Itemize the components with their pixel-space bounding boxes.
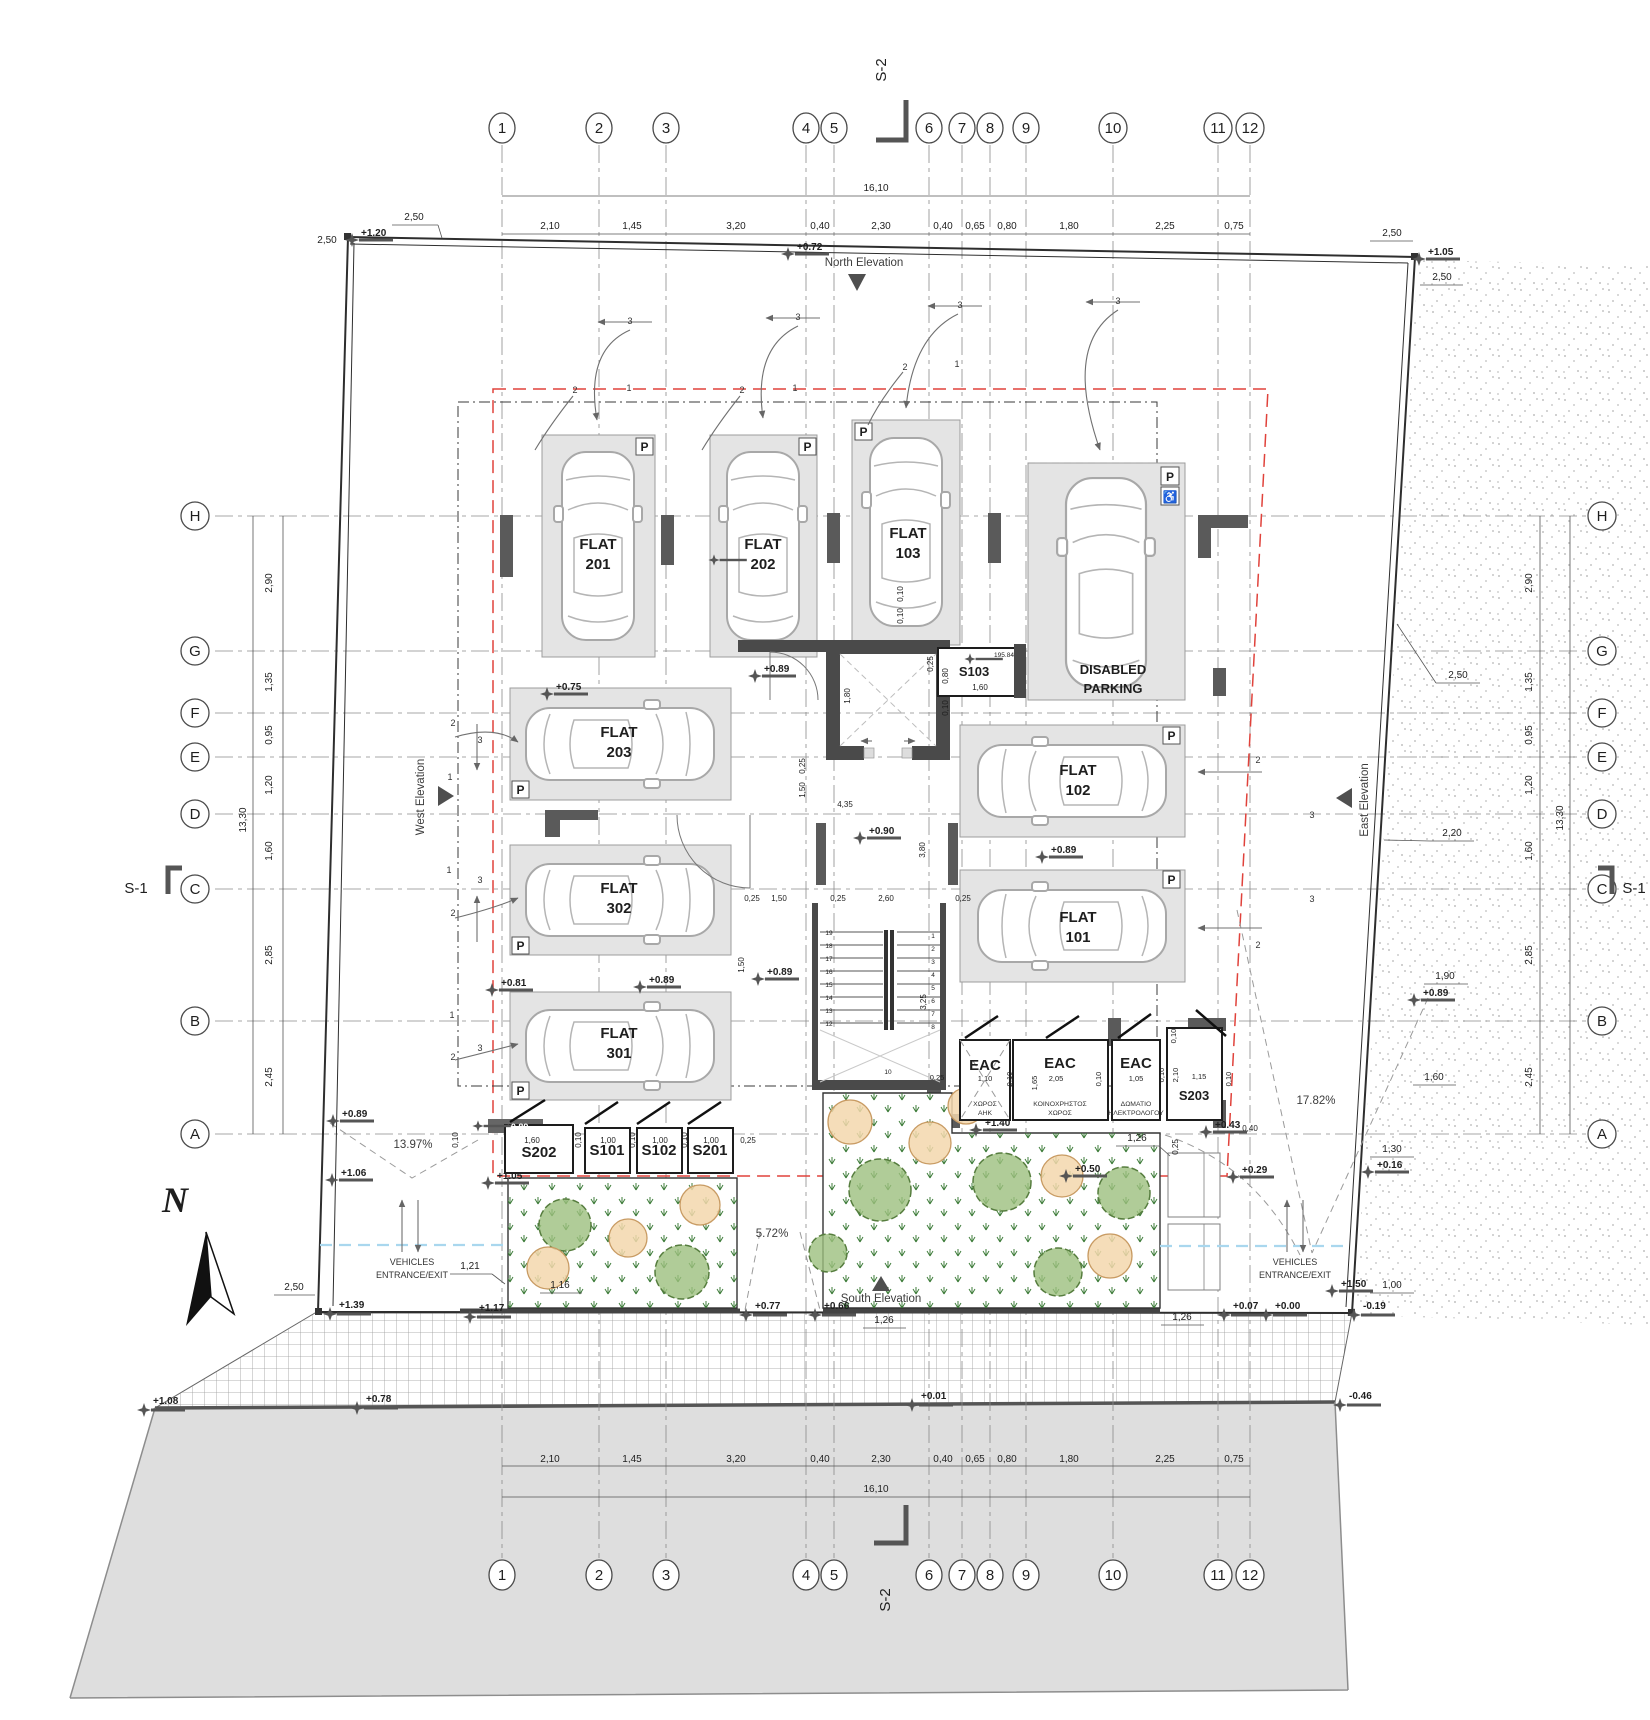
- svg-text:12: 12: [1242, 1567, 1259, 1584]
- dimension-labels-top: 2,101,45 3,200,40 2,300,40 0,650,80 1,80…: [540, 183, 1244, 232]
- sidewalk-pavement: [155, 1313, 1352, 1408]
- svg-text:1: 1: [446, 865, 451, 875]
- svg-text:2,85: 2,85: [264, 945, 275, 965]
- slope-label: 17.82%: [1296, 1095, 1335, 1107]
- dim-label: 0,10: [1094, 1072, 1103, 1087]
- dim-label: 3,25: [919, 994, 928, 1010]
- svg-text:8: 8: [986, 1567, 994, 1584]
- svg-text:2: 2: [1255, 940, 1260, 950]
- svg-text:0,75: 0,75: [1224, 1454, 1244, 1465]
- stall-flat-103: P FLAT 103: [852, 420, 960, 645]
- svg-text:0,40: 0,40: [933, 1454, 953, 1465]
- dim-label: 0,10: [1169, 1029, 1178, 1044]
- stall-label: FLAT: [600, 880, 637, 897]
- svg-text:+0.81: +0.81: [501, 978, 527, 989]
- stall-flat-302: P FLAT 302: [510, 845, 731, 955]
- svg-text:+1.50: +1.50: [1341, 1279, 1367, 1290]
- corner-marker: [315, 1308, 322, 1315]
- stall-flat-202: P FLAT 202: [710, 435, 817, 657]
- stall-label: 102: [1065, 782, 1090, 799]
- svg-text:+1.17: +1.17: [479, 1303, 505, 1314]
- svg-text:D: D: [1597, 806, 1608, 823]
- planter-box: [1168, 1153, 1220, 1217]
- svg-text:2: 2: [1255, 755, 1260, 765]
- svg-text:3: 3: [627, 316, 632, 326]
- entrance-label: VEHICLES: [1273, 1257, 1318, 1267]
- shrub-icon: [609, 1219, 647, 1257]
- svg-text:+1.05: +1.05: [497, 1171, 523, 1182]
- svg-text:2,10: 2,10: [540, 221, 560, 232]
- stall-flat-102: P FLAT 102: [960, 725, 1185, 837]
- svg-text:12: 12: [1242, 120, 1259, 137]
- svg-text:4: 4: [802, 120, 810, 137]
- shrub-icon: [680, 1185, 720, 1225]
- dim-label: 3,80: [918, 842, 927, 858]
- slope-label: 13.97%: [393, 1139, 432, 1151]
- svg-text:+0.50: +0.50: [1075, 1164, 1101, 1175]
- dim-label: 2,60: [878, 894, 894, 903]
- svg-text:11: 11: [1210, 1567, 1226, 1584]
- svg-text:0,75: 0,75: [1224, 221, 1244, 232]
- svg-text:0,40: 0,40: [810, 1454, 830, 1465]
- room-sublabel: ΗΛΕΚΤΡΟΛΟΓΟΥ: [1108, 1110, 1164, 1117]
- svg-text:3: 3: [1309, 810, 1314, 820]
- entrance-label: ENTRANCE/EXIT: [376, 1270, 449, 1280]
- svg-text:2,30: 2,30: [871, 1454, 891, 1465]
- svg-text:+0.89: +0.89: [1051, 845, 1077, 856]
- svg-text:1,90: 1,90: [1435, 971, 1455, 982]
- dim-label: 0,10: [1157, 1068, 1166, 1083]
- dim-label: 0,25: [926, 656, 935, 672]
- dim-label: 4,35: [837, 800, 853, 809]
- svg-text:8: 8: [986, 120, 994, 137]
- svg-text:1,26: 1,26: [874, 1315, 894, 1326]
- dimension-labels-left: 2,90 1,35 0,95 1,20 1,60 2,85 2,45 13,30: [238, 573, 275, 1087]
- tread-number: 6: [931, 998, 935, 1005]
- planter-box: [1168, 1224, 1220, 1290]
- svg-text:E: E: [1597, 749, 1607, 766]
- svg-text:3: 3: [1115, 296, 1120, 306]
- svg-text:2,45: 2,45: [1524, 1067, 1535, 1087]
- svg-text:2: 2: [739, 385, 744, 395]
- parking-sign-icon: P: [803, 440, 811, 454]
- svg-text:2,25: 2,25: [1155, 221, 1175, 232]
- svg-text:1,16: 1,16: [550, 1280, 570, 1291]
- svg-text:+0.16: +0.16: [1377, 1160, 1403, 1171]
- tread-number: 16: [825, 969, 833, 976]
- car-icon: [1057, 478, 1155, 687]
- storage-row: S202 S101 S102 S201 +0.89 0,10 1,60 0,10…: [451, 1100, 756, 1173]
- dim-label: 0,25: [740, 1136, 756, 1145]
- svg-text:11: 11: [1210, 120, 1226, 137]
- svg-text:1,21: 1,21: [460, 1261, 480, 1272]
- stall-label: FLAT: [1059, 909, 1096, 926]
- svg-text:7: 7: [958, 1567, 966, 1584]
- svg-text:0,65: 0,65: [965, 1454, 985, 1465]
- svg-text:+1.06: +1.06: [341, 1168, 367, 1179]
- svg-text:+1.05: +1.05: [1428, 247, 1454, 258]
- tread-number: 18: [825, 943, 833, 950]
- stall-label: DISABLED: [1080, 662, 1146, 677]
- svg-text:+0.89: +0.89: [767, 967, 793, 978]
- stall-label: FLAT: [889, 525, 926, 542]
- svg-text:1: 1: [626, 383, 631, 393]
- svg-text:1: 1: [447, 772, 452, 782]
- east-elevation-arrow-icon: [1336, 788, 1352, 808]
- tread-number: 4: [931, 972, 935, 979]
- svg-text:+0.29: +0.29: [1242, 1165, 1268, 1176]
- tree-icon: [849, 1159, 911, 1221]
- svg-text:1,45: 1,45: [622, 1454, 642, 1465]
- stall-label: FLAT: [579, 536, 616, 553]
- svg-text:0,80: 0,80: [997, 1454, 1017, 1465]
- dim-label: 0,25: [955, 894, 971, 903]
- stall-label: 301: [606, 1045, 631, 1062]
- tread-number: 8: [931, 1024, 935, 1031]
- stall-label: 101: [1065, 929, 1090, 946]
- room-label: EAC: [1120, 1055, 1152, 1072]
- stall-label: FLAT: [744, 536, 781, 553]
- stall-label: FLAT: [600, 724, 637, 741]
- svg-text:16,10: 16,10: [863, 183, 888, 194]
- svg-text:+1.39: +1.39: [339, 1300, 365, 1311]
- stall-label: 201: [585, 556, 610, 573]
- storage-s103: S103 1,60 0,80 0,25 0,10 195.84: [926, 644, 1026, 716]
- tread-number: 1: [931, 933, 935, 940]
- tread-number: 2: [931, 946, 935, 953]
- room-label: EAC: [1044, 1055, 1076, 1072]
- parking-sign-icon: P: [859, 425, 867, 439]
- svg-text:2,20: 2,20: [1442, 828, 1462, 839]
- svg-text:C: C: [1597, 881, 1608, 898]
- storage-label: S203: [1179, 1088, 1209, 1103]
- svg-text:0,95: 0,95: [1524, 725, 1535, 745]
- storage-label: S202: [521, 1144, 556, 1161]
- svg-text:7: 7: [958, 120, 966, 137]
- dim-label: 1,10: [978, 1074, 993, 1083]
- svg-text:9: 9: [1022, 1567, 1030, 1584]
- shrub-icon: [828, 1100, 872, 1144]
- tread-number: 15: [825, 982, 833, 989]
- compass-letter: N: [161, 1180, 190, 1220]
- svg-text:1,35: 1,35: [1524, 672, 1535, 692]
- tree-icon: [1034, 1248, 1082, 1296]
- svg-text:3: 3: [477, 1043, 482, 1053]
- room-sublabel: ΔΩΜΑΤΙΟ: [1121, 1101, 1152, 1108]
- car-icon: [978, 737, 1166, 825]
- svg-text:A: A: [1597, 1126, 1607, 1143]
- svg-text:+0.00: +0.00: [1275, 1301, 1301, 1312]
- svg-text:10: 10: [1105, 1567, 1122, 1584]
- svg-text:H: H: [1597, 508, 1608, 525]
- stall-label: PARKING: [1084, 681, 1143, 696]
- svg-text:1: 1: [498, 120, 506, 137]
- svg-text:1,35: 1,35: [264, 672, 275, 692]
- svg-text:2,85: 2,85: [1524, 945, 1535, 965]
- parking-sign-icon: P: [516, 939, 524, 953]
- tread-number: 19: [825, 930, 833, 937]
- svg-text:+0.75: +0.75: [556, 682, 582, 693]
- dim-label: 0,10: [1224, 1072, 1233, 1087]
- svg-text:+0.89: +0.89: [342, 1109, 368, 1120]
- svg-text:+1.40: +1.40: [985, 1118, 1011, 1129]
- room-sublabel: ΚΟΙΝΟΧΡΗΣΤΟΣ: [1033, 1101, 1086, 1108]
- svg-text:1: 1: [954, 359, 959, 369]
- dim-label: 1,15: [1192, 1072, 1207, 1081]
- dim-label: 0,25: [744, 894, 760, 903]
- svg-text:A: A: [190, 1126, 200, 1143]
- dim-label: 1,05: [1129, 1074, 1144, 1083]
- svg-text:16,10: 16,10: [863, 1484, 888, 1495]
- tree-icon: [809, 1234, 847, 1272]
- dim-label: 0,10: [680, 1132, 689, 1148]
- parking-sign-icon: P: [516, 1084, 524, 1098]
- svg-text:6: 6: [925, 120, 933, 137]
- parking-sign-icon: P: [516, 783, 524, 797]
- svg-text:13,30: 13,30: [1555, 805, 1566, 830]
- parking-sign-icon: P: [1167, 873, 1175, 887]
- tread-number: 7: [931, 1011, 935, 1018]
- dim-label: 0,10: [1005, 1072, 1014, 1087]
- svg-text:S-1: S-1: [124, 880, 147, 897]
- svg-text:0,80: 0,80: [997, 221, 1017, 232]
- svg-text:B: B: [190, 1013, 200, 1030]
- stall-flat-101: P FLAT 101: [960, 870, 1185, 982]
- svg-text:2,50: 2,50: [1448, 670, 1468, 681]
- svg-text:2: 2: [572, 385, 577, 395]
- svg-text:2: 2: [450, 908, 455, 918]
- tread-number: 13: [825, 1008, 833, 1015]
- stall-label: 302: [606, 900, 631, 917]
- svg-text:1,20: 1,20: [264, 775, 275, 795]
- shrub-icon: [1088, 1234, 1132, 1278]
- svg-text:G: G: [189, 643, 201, 660]
- svg-text:B: B: [1597, 1013, 1607, 1030]
- svg-text:2,50: 2,50: [1382, 228, 1402, 239]
- svg-text:2: 2: [450, 718, 455, 728]
- svg-text:0,65: 0,65: [965, 221, 985, 232]
- dim-label: 0,10: [574, 1132, 583, 1148]
- svg-text:+0.77: +0.77: [755, 1301, 781, 1312]
- stall-flat-203: P FLAT 203: [510, 688, 731, 800]
- svg-text:E: E: [190, 749, 200, 766]
- tread-number: 17: [825, 956, 833, 963]
- svg-text:2,25: 2,25: [1155, 1454, 1175, 1465]
- svg-text:1,60: 1,60: [264, 841, 275, 861]
- svg-text:2,50: 2,50: [404, 212, 424, 223]
- room-label: EAC: [969, 1057, 1001, 1074]
- svg-text:1,45: 1,45: [622, 221, 642, 232]
- svg-text:+0.01: +0.01: [921, 1391, 947, 1402]
- tread-number: 14: [825, 995, 833, 1002]
- svg-text:1: 1: [792, 383, 797, 393]
- svg-text:+1.08: +1.08: [153, 1396, 179, 1407]
- svg-text:1: 1: [449, 1010, 454, 1020]
- svg-text:3,20: 3,20: [726, 221, 746, 232]
- stall-label: FLAT: [600, 1025, 637, 1042]
- svg-text:S-2: S-2: [873, 58, 890, 81]
- svg-text:+0.72: +0.72: [797, 242, 823, 253]
- dim-label: 0,10: [896, 586, 905, 602]
- svg-text:S-1: S-1: [1622, 880, 1645, 897]
- spot-elevations: +1.20 +0.72 +1.05 +0.75 +0.89 +0.90 +0.8…: [137, 228, 1460, 1417]
- car-icon: [978, 882, 1166, 970]
- dim-label: 10: [884, 1069, 892, 1076]
- svg-text:2: 2: [450, 1052, 455, 1062]
- dim-label: 2,10: [1171, 1068, 1180, 1083]
- dim-label: 0,80: [941, 668, 950, 684]
- svg-text:0,95: 0,95: [264, 725, 275, 745]
- slope-label: 5.72%: [756, 1228, 789, 1240]
- stall-flat-201: P FLAT 201: [542, 435, 655, 657]
- svg-text:D: D: [190, 806, 201, 823]
- dim-label: 1,00: [703, 1136, 719, 1145]
- room-sublabel: ΧΩΡΟΣ: [1048, 1110, 1072, 1117]
- svg-text:0,40: 0,40: [933, 221, 953, 232]
- svg-text:2,50: 2,50: [284, 1282, 304, 1293]
- dim-label: 0,10: [451, 1132, 460, 1148]
- dim-label: 0,10: [941, 700, 950, 716]
- wheelchair-icon: ♿: [1163, 490, 1178, 504]
- svg-text:1,80: 1,80: [1059, 221, 1079, 232]
- svg-text:1,20: 1,20: [1524, 775, 1535, 795]
- svg-text:F: F: [1597, 705, 1606, 722]
- dim-label: 1,50: [771, 894, 787, 903]
- svg-text:3: 3: [957, 300, 962, 310]
- svg-text:+1.20: +1.20: [361, 228, 387, 239]
- svg-text:1: 1: [498, 1567, 506, 1584]
- svg-text:5: 5: [830, 1567, 838, 1584]
- svg-text:West Elevation: West Elevation: [415, 759, 427, 836]
- dim-label: 2,05: [1049, 1074, 1064, 1083]
- entrance-label: VEHICLES: [390, 1257, 435, 1267]
- west-elevation-arrow-icon: [438, 786, 454, 806]
- svg-text:-0.19: -0.19: [1363, 1301, 1386, 1312]
- svg-text:F: F: [190, 705, 199, 722]
- tree-icon: [539, 1199, 591, 1251]
- svg-text:0,25: 0,25: [1171, 1139, 1180, 1155]
- entrance-label: ENTRANCE/EXIT: [1259, 1270, 1332, 1280]
- floor-plan-drawing: P FLAT 201 P FLAT 202 P FLAT 103 P ♿ DIS…: [0, 0, 1650, 1720]
- dim-label: 0,25: [930, 1073, 945, 1082]
- tree-icon: [655, 1245, 709, 1299]
- svg-text:2,10: 2,10: [540, 1454, 560, 1465]
- room-sublabel: ΧΩΡΟΣ: [973, 1101, 997, 1108]
- svg-text:3: 3: [662, 1567, 670, 1584]
- svg-text:1,26: 1,26: [1127, 1133, 1147, 1144]
- parking-sign-icon: P: [640, 440, 648, 454]
- svg-text:2,90: 2,90: [264, 573, 275, 593]
- dim-label: 0,25: [798, 758, 807, 774]
- tread-number: 3: [931, 959, 935, 966]
- svg-text:+0.90: +0.90: [869, 826, 895, 837]
- svg-text:10: 10: [1105, 120, 1122, 137]
- floor-plan-canvas: P FLAT 201 P FLAT 202 P FLAT 103 P ♿ DIS…: [0, 0, 1650, 1720]
- svg-text:2,45: 2,45: [264, 1067, 275, 1087]
- dim-label: 1,00: [600, 1136, 616, 1145]
- svg-text:2,30: 2,30: [871, 221, 891, 232]
- svg-text:-0.46: -0.46: [1349, 1391, 1372, 1402]
- dim-label: 1,50: [737, 957, 746, 973]
- svg-text:2: 2: [595, 1567, 603, 1584]
- room-sublabel: ΑΗΚ: [978, 1110, 992, 1117]
- svg-text:1,60: 1,60: [1424, 1072, 1444, 1083]
- svg-text:2: 2: [595, 120, 603, 137]
- grid-bubbles-left: H G F E D C B A: [181, 502, 209, 1148]
- svg-text:+0.78: +0.78: [366, 1394, 392, 1405]
- road-surface: [70, 1402, 1348, 1698]
- dim-label: 1,00: [652, 1136, 668, 1145]
- storage-label: S103: [959, 664, 989, 679]
- svg-text:9: 9: [1022, 120, 1030, 137]
- svg-text:5: 5: [830, 120, 838, 137]
- svg-text:6: 6: [925, 1567, 933, 1584]
- eac-rooms: EAC EAC EAC S203 ΧΩΡΟΣ ΑΗΚ ΚΟΙΝΟΧΡΗΣΤΟΣ …: [930, 1010, 1233, 1120]
- dim-label: 1,50: [798, 782, 807, 798]
- svg-text:G: G: [1596, 643, 1608, 660]
- svg-text:+0.89: +0.89: [764, 664, 790, 675]
- north-elevation-arrow-icon: [848, 274, 866, 291]
- svg-text:3: 3: [477, 875, 482, 885]
- dim-label: 1,65: [1030, 1076, 1039, 1091]
- garden-west: [508, 1178, 737, 1308]
- svg-text:1,26: 1,26: [1172, 1312, 1192, 1323]
- svg-text:3: 3: [795, 312, 800, 322]
- svg-text:H: H: [190, 508, 201, 525]
- svg-text:3: 3: [477, 735, 482, 745]
- svg-text:North Elevation: North Elevation: [825, 257, 904, 269]
- svg-text:South Elevation: South Elevation: [841, 1293, 922, 1305]
- tread-number: 5: [931, 985, 935, 992]
- svg-text:2,50: 2,50: [1432, 272, 1452, 283]
- svg-text:2: 2: [902, 362, 907, 372]
- svg-text:0,40: 0,40: [810, 221, 830, 232]
- svg-text:3: 3: [662, 120, 670, 137]
- svg-text:+0.89: +0.89: [649, 975, 675, 986]
- stall-label: FLAT: [1059, 762, 1096, 779]
- svg-text:S-2: S-2: [877, 1588, 894, 1611]
- svg-text:2,90: 2,90: [1524, 573, 1535, 593]
- svg-text:+0.07: +0.07: [1233, 1301, 1259, 1312]
- svg-text:C: C: [190, 881, 201, 898]
- svg-text:+0.43: +0.43: [1215, 1120, 1241, 1131]
- svg-text:3,20: 3,20: [726, 1454, 746, 1465]
- dim-label: 1,60: [524, 1136, 540, 1145]
- shrub-icon: [909, 1122, 951, 1164]
- svg-text:1,00: 1,00: [1382, 1280, 1402, 1291]
- svg-text:+0.89: +0.89: [1423, 988, 1449, 999]
- svg-text:1,30: 1,30: [1382, 1144, 1402, 1155]
- dim-label: 0,25: [830, 894, 846, 903]
- stall-label: 103: [895, 545, 920, 562]
- tread-number: 12: [825, 1021, 833, 1028]
- svg-text:2,50: 2,50: [317, 235, 337, 246]
- svg-text:1,60: 1,60: [1524, 841, 1535, 861]
- stairwell: 19 18 17 16 15 14 13 12 1 2 3 4 5 6 7 8 …: [812, 903, 946, 1116]
- svg-text:East Elevation: East Elevation: [1359, 763, 1371, 837]
- stall-label: 202: [750, 556, 775, 573]
- south-ramp-lines: [745, 1232, 820, 1310]
- stall-disabled-parking: P ♿ DISABLED PARKING: [1028, 463, 1185, 700]
- stall-label: 203: [606, 744, 631, 761]
- svg-text:3: 3: [1309, 894, 1314, 904]
- stall-flat-301: P FLAT 301: [510, 992, 731, 1100]
- parking-sign-icon: P: [1166, 470, 1174, 484]
- svg-text:1,80: 1,80: [1059, 1454, 1079, 1465]
- svg-text:4: 4: [802, 1567, 810, 1584]
- dim-label: 1,60: [972, 683, 988, 692]
- dim-label: 0,10: [628, 1132, 637, 1148]
